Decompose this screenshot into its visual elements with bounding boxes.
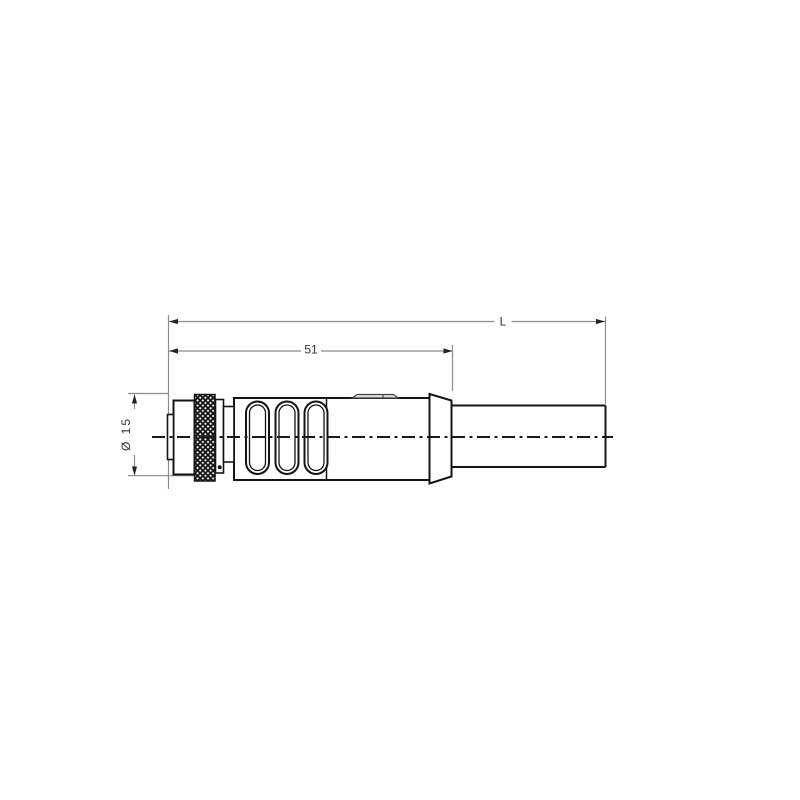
nut-rear-neck	[224, 407, 235, 463]
label-overall-length: L	[500, 315, 507, 329]
connector-technical-drawing: L 51 Ø 15	[0, 0, 800, 800]
vent-hole-dot	[218, 465, 222, 469]
label-connector-length: 51	[304, 343, 318, 357]
label-diameter: Ø 15	[119, 417, 133, 451]
mold-tab	[353, 395, 399, 399]
bend-relief-flange	[430, 394, 452, 484]
drawing-canvas: L 51 Ø 15	[0, 0, 800, 800]
